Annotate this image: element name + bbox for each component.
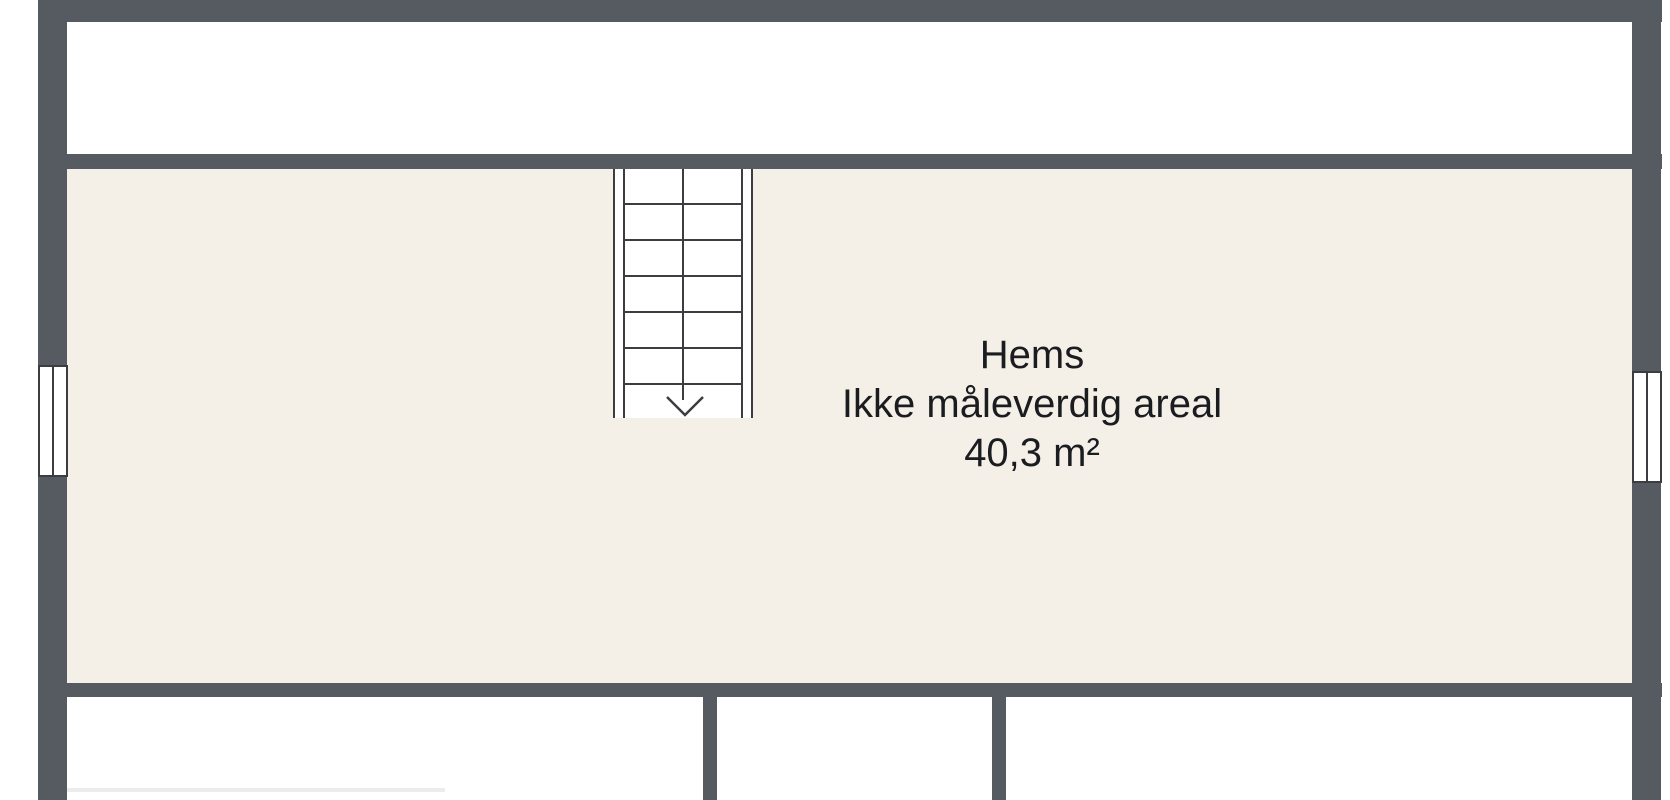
faint-edge-line: [67, 788, 445, 792]
wall-mid: [38, 154, 1662, 169]
room-upper-strip: [67, 22, 1632, 154]
window-right: [1632, 371, 1662, 483]
wall-bottom: [38, 683, 1662, 697]
rooms-lower-floor: [67, 697, 1632, 800]
window-left: [38, 365, 68, 477]
wall-divider-right: [992, 697, 1006, 800]
room-label: Hems Ikke måleverdig areal 40,3 m²: [732, 331, 1332, 478]
room-area: 40,3 m²: [732, 429, 1332, 478]
wall-divider-left: [703, 697, 717, 800]
floor-plan-page: { "floorplan": { "room": { "name": "Hems…: [0, 0, 1670, 800]
arrow-down-icon: [615, 168, 751, 418]
room-note: Ikke måleverdig areal: [732, 380, 1332, 429]
wall-top: [38, 0, 1662, 22]
room-name: Hems: [732, 331, 1332, 380]
window-mullion: [1646, 373, 1648, 481]
window-mullion: [52, 367, 54, 475]
